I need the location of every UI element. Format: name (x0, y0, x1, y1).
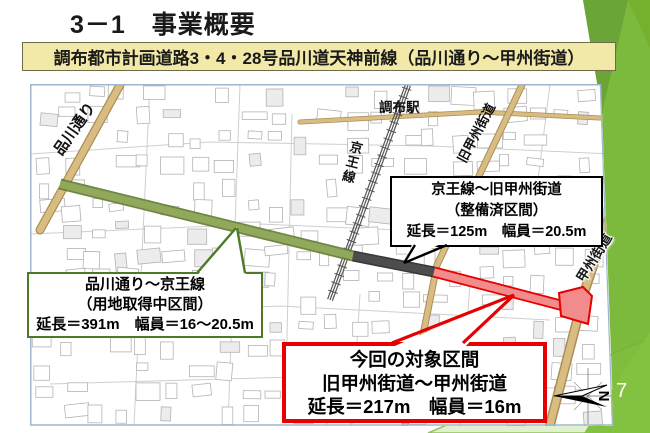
label-chofu-station: 調布駅 (379, 96, 420, 116)
callout-target-line2: 旧甲州街道～甲州街道 (286, 372, 543, 396)
callout-acquiring-section: 品川通り～京王線 （用地取得中区間） 延長＝391m 幅員＝16～20.5m (27, 272, 263, 338)
page-number: 7 (616, 380, 627, 403)
north-label: N (595, 391, 612, 402)
callout-acquiring-line1: 品川通り～京王線 (29, 275, 261, 295)
callout-target-line3: 延長＝217m 幅員＝16m (286, 395, 543, 419)
callout-completed-section: 京王線～旧甲州街道 （整備済区間） 延長＝125m 幅員＝20.5m (390, 176, 603, 247)
callout-target-section: 今回の対象区間 旧甲州街道～甲州街道 延長＝217m 幅員＝16m (282, 342, 547, 423)
callout-completed-line3: 延長＝125m 幅員＝20.5m (392, 222, 601, 243)
callout-acquiring-line3: 延長＝391m 幅員＝16～20.5m (29, 315, 261, 335)
slide: 3－1 事業概要 調布都市計画道路3・4・28号品川道天神前線（品川通り～甲州街… (0, 0, 650, 433)
segment-acquiring (60, 184, 353, 256)
callout-target-line1: 今回の対象区間 (286, 348, 543, 372)
project-name-banner: 調布都市計画道路3・4・28号品川道天神前線（品川通り～甲州街道） (22, 42, 616, 71)
callout-acquiring-line2: （用地取得中区間） (29, 295, 261, 315)
callout-completed-line2: （整備済区間） (392, 201, 601, 222)
callout-completed-line1: 京王線～旧甲州街道 (392, 180, 601, 201)
page-title: 3－1 事業概要 (70, 5, 256, 41)
